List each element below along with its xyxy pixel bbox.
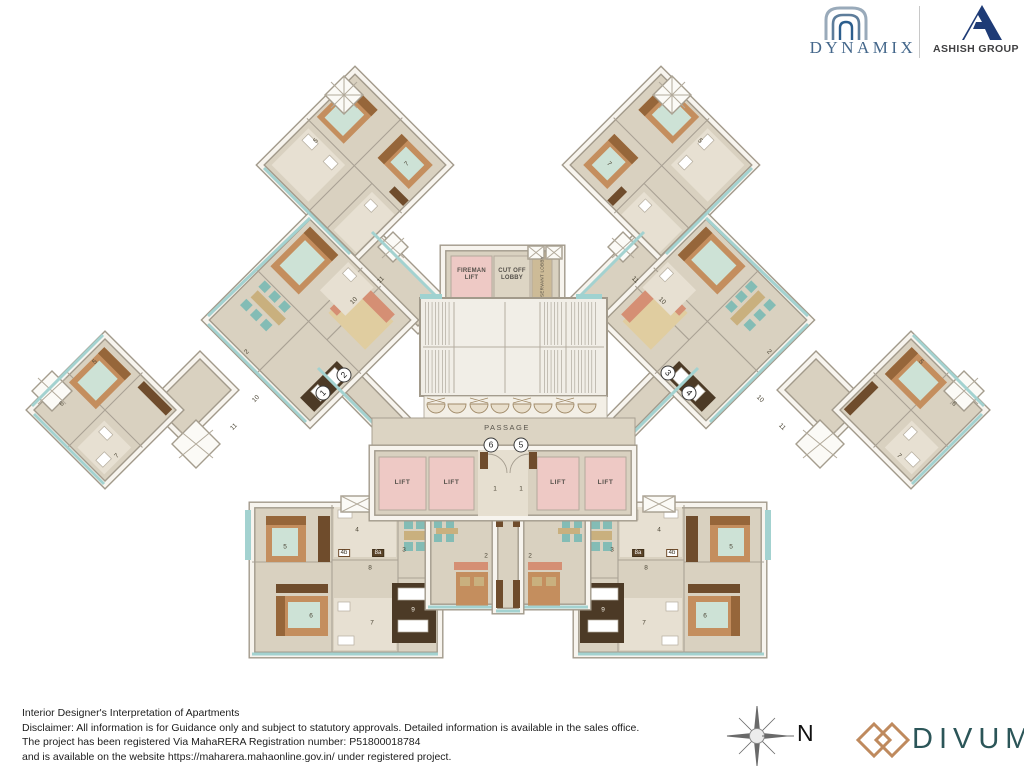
room-number-label: 11	[376, 275, 386, 285]
room-number-label: 4b	[338, 549, 350, 557]
passage-label: PASSAGE	[477, 423, 537, 432]
ashish-group-wordmark: ASHISH GROUP	[928, 43, 1024, 55]
room-number-label: 2	[765, 348, 773, 356]
room-number-label: 11	[229, 422, 239, 432]
room-number-label: 4	[355, 527, 359, 534]
room-number-label: 11	[777, 422, 787, 432]
room-number-label: 5	[729, 544, 733, 551]
room-number-label: 5	[91, 358, 99, 366]
room-number-label: 8	[644, 565, 648, 572]
entry-marker-2: 2	[333, 364, 354, 385]
room-number-label: 7	[370, 620, 374, 627]
entry-marker-4: 4	[678, 382, 699, 403]
lift-label-4: LIFT	[585, 479, 626, 486]
room-number-label: 9	[411, 607, 415, 614]
entry-marker-1: 1	[312, 382, 333, 403]
servant-lobby-label: SERVANT LOBBY	[540, 256, 545, 298]
entry-marker-5: 5	[514, 438, 529, 453]
disclaimer-line-1: Interior Designer's Interpretation of Ap…	[22, 706, 639, 721]
room-number-label: 1	[493, 486, 497, 493]
room-number-label: 6	[703, 613, 707, 620]
room-number-label: 8a	[372, 549, 384, 557]
lift-label-1: LIFT	[379, 479, 426, 486]
room-number-label: 6	[309, 613, 313, 620]
room-number-label: 5	[696, 137, 704, 145]
room-number-label: 10	[755, 394, 765, 404]
room-number-label: 10	[657, 296, 667, 306]
entry-marker-6: 6	[484, 438, 499, 453]
dynamix-wordmark: DYNAMIX	[808, 38, 918, 58]
floor-plan-page: FIREMAN LIFT CUT OFF LOBBY SERVANT LOBBY…	[0, 0, 1024, 769]
room-number-label: 6	[58, 400, 66, 408]
room-number-label: 5	[917, 358, 925, 366]
disclaimer-line-2: Disclaimer: All information is for Guida…	[22, 721, 639, 736]
lift-label-2: LIFT	[429, 479, 474, 486]
room-number-label: 8a	[632, 549, 644, 557]
room-number-label: 7	[403, 160, 411, 168]
room-number-label: 3	[402, 547, 406, 554]
room-number-label: 2	[243, 348, 251, 356]
room-number-label: 5	[312, 137, 320, 145]
room-number-label: 7	[605, 160, 613, 168]
room-number-label: 1	[519, 486, 523, 493]
brand-header: DYNAMIX ASHISH GROUP	[790, 0, 1024, 66]
room-number-label: 10	[349, 296, 359, 306]
lift-label-3: LIFT	[537, 479, 579, 486]
divum-wordmark: DIVUM	[912, 723, 1024, 756]
header-divider	[919, 6, 920, 58]
room-number-label: 2	[528, 553, 532, 560]
disclaimer-line-3: The project has been registered Via Maha…	[22, 735, 639, 750]
room-number-label: 4b	[666, 549, 678, 557]
disclaimer-line-4: and is available on the website https://…	[22, 750, 639, 765]
room-number-label: 7	[895, 452, 903, 460]
room-number-label: 4	[657, 527, 661, 534]
room-number-label: 11	[630, 275, 640, 285]
room-number-label: 9	[601, 607, 605, 614]
disclaimer-block: Interior Designer's Interpretation of Ap…	[22, 706, 639, 764]
room-number-label: 2	[484, 553, 488, 560]
compass-north-label: N	[797, 720, 814, 747]
fireman-lift-label: FIREMAN LIFT	[451, 268, 492, 282]
room-number-label: 7	[642, 620, 646, 627]
room-number-label: 7	[113, 452, 121, 460]
room-number-label: 10	[251, 394, 261, 404]
room-number-label: 5	[283, 544, 287, 551]
plan-label-layer: FIREMAN LIFT CUT OFF LOBBY SERVANT LOBBY…	[0, 0, 1024, 769]
cut-off-lobby-label: CUT OFF LOBBY	[493, 268, 531, 282]
entry-marker-3: 3	[657, 362, 678, 383]
room-number-label: 3	[610, 547, 614, 554]
room-number-label: 6	[950, 400, 958, 408]
room-number-label: 8	[368, 565, 372, 572]
